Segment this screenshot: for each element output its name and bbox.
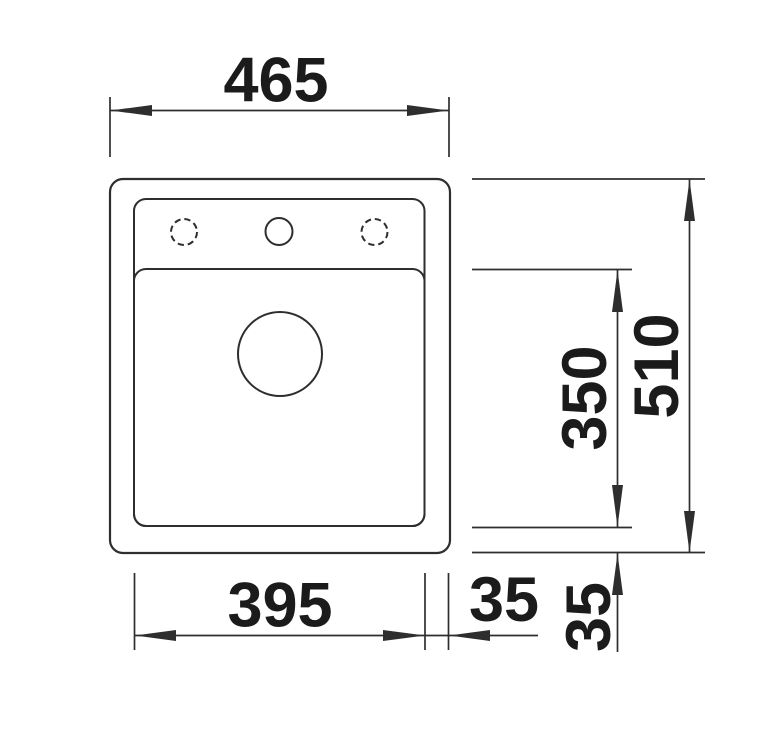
- arrow-up-icon: [612, 270, 623, 312]
- technical-drawing-canvas: 465 510 350 395 35 35: [0, 0, 776, 746]
- dimension-bowl-width: 395 35: [135, 565, 540, 650]
- sink-rim-inner-edge: [134, 199, 425, 526]
- arrow-right-icon: [407, 105, 449, 116]
- arrow-left-icon: [135, 630, 176, 641]
- dimension-label-rim-bottom: 35: [554, 582, 624, 652]
- dimension-label-overall-depth: 510: [622, 313, 692, 418]
- arrow-up-icon: [684, 180, 695, 222]
- dimension-rim-bottom: 35: [554, 553, 624, 652]
- dimension-label-bowl-depth: 350: [550, 345, 620, 450]
- arrow-down-icon: [684, 511, 695, 553]
- sink-bowl-edge: [134, 269, 425, 526]
- arrow-down-icon: [612, 485, 623, 527]
- dimension-label-bowl-width: 395: [227, 571, 332, 641]
- sink-dimension-drawing: 465 510 350 395 35 35: [0, 0, 776, 746]
- arrow-right-icon: [383, 630, 425, 641]
- arrow-left-icon: [111, 105, 153, 116]
- dimension-label-rim-right: 35: [469, 565, 539, 635]
- sink-plan-view: [110, 179, 450, 553]
- dimension-bowl-depth: 350: [472, 270, 632, 528]
- sink-outer-edge: [110, 179, 450, 553]
- tap-hole-left-optional-icon: [171, 219, 197, 245]
- tap-hole-center-icon: [266, 218, 293, 245]
- tap-hole-right-optional-icon: [362, 219, 388, 245]
- dimension-overall-width: 465: [110, 46, 449, 158]
- dimension-label-overall-width: 465: [223, 46, 328, 116]
- drain-hole-icon: [238, 312, 322, 396]
